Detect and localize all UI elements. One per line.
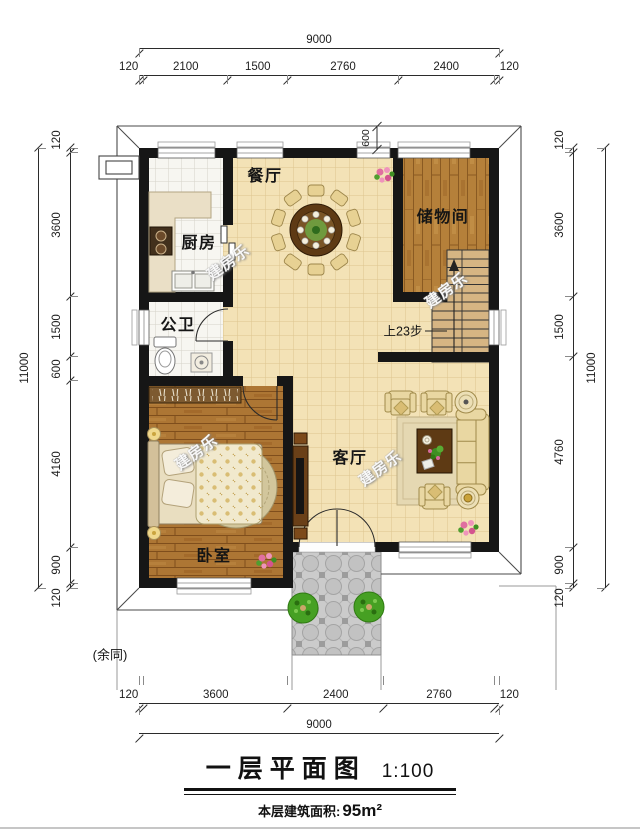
title-underline-thin [184, 794, 456, 795]
sink-icon [172, 271, 214, 291]
sofa [456, 409, 489, 495]
storage-window [398, 142, 470, 158]
room-label-bedroom: 卧室 [196, 542, 231, 566]
dim-bottom-total: 9000 [139, 715, 499, 734]
bush-icon [288, 593, 318, 623]
room-label-kitchen: 厨房 [181, 229, 216, 253]
side-table [455, 391, 477, 413]
armchair [419, 484, 450, 509]
dim-right-segments: 120360015004760900120 [557, 148, 574, 588]
dim-left-total: 11000 [22, 148, 39, 588]
plan-title: 一层平面图 [206, 749, 366, 785]
room-label-bathroom: 公卫 [160, 311, 195, 335]
plan-scale: 1:100 [382, 761, 435, 783]
area-row: 本层建筑面积: 95m² [0, 801, 640, 821]
dim-right-total: 11000 [589, 148, 606, 588]
room-label-dining: 餐厅 [247, 162, 282, 186]
stairs-note: 上23步 [384, 321, 423, 340]
dim-left-segments: 120360015006004160900120 [54, 148, 71, 588]
dim-top-total: 9000 [139, 30, 499, 49]
side-table [457, 487, 479, 509]
floor-plan-drawing [0, 0, 640, 833]
bush-icon [354, 592, 384, 622]
wardrobe [149, 387, 241, 403]
area-value: 95m² [342, 801, 382, 821]
kitchen-window [158, 142, 215, 158]
flue-box [99, 156, 139, 179]
armchair [385, 391, 416, 415]
bathroom-window [132, 310, 149, 345]
pillow [161, 447, 195, 476]
room-label-living: 客厅 [332, 444, 367, 468]
floor-plan-canvas: 9000 1202100150027602400120 120360024002… [0, 0, 640, 833]
floor-drain-icon [191, 353, 212, 372]
pillow [161, 479, 195, 508]
stove-icon [150, 227, 172, 255]
bed [148, 428, 263, 540]
living-window [399, 542, 471, 558]
toilet-icon [154, 337, 176, 374]
title-block: 一层平面图 1:100 [0, 749, 640, 785]
bottom-border [0, 827, 640, 829]
bedroom-window [177, 578, 251, 594]
dim-bottom-segments: 120360024002760120 [139, 685, 499, 704]
room-label-storage: 储物间 [417, 203, 470, 227]
eave-dimension-label: 600 [355, 127, 377, 149]
same-as-note: (余同) [93, 645, 128, 664]
stair-window [489, 310, 506, 345]
quilt [196, 444, 262, 524]
coffee-table [417, 429, 452, 473]
dim-top-segments: 1202100150027602400120 [139, 57, 499, 76]
tv-cabinet [293, 433, 308, 539]
title-underline-thick [184, 788, 456, 791]
dining-window [237, 142, 283, 158]
armchair [421, 391, 452, 415]
area-label: 本层建筑面积: [258, 801, 340, 820]
